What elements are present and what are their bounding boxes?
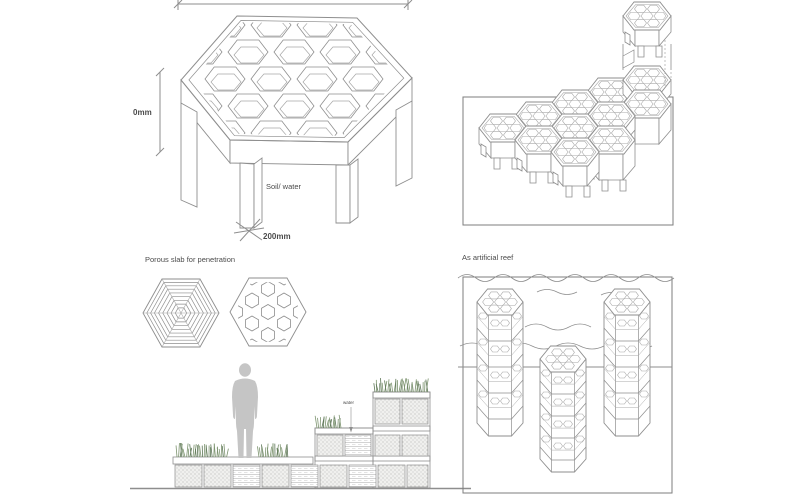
porous-slab-title: Porous slab for penetration — [145, 255, 235, 264]
reef-tower — [477, 289, 523, 436]
panel-artificial-reef: As artificial reef — [455, 245, 805, 503]
reef-tower — [604, 289, 650, 436]
panel-hex-block-detail: 0mm Soil/ water 200mm — [130, 0, 440, 245]
leg-dimension-label: 200mm — [263, 232, 291, 241]
soil-water-label: Soil/ water — [266, 182, 302, 191]
height-dimension-label: 0mm — [133, 108, 152, 117]
module-cluster-drawing — [455, 0, 805, 232]
dimension-line-top — [174, 0, 412, 10]
reef-tower — [540, 346, 586, 472]
grass-tuft — [257, 443, 287, 457]
hex-block-drawing: 0mm Soil/ water 200mm — [130, 0, 440, 245]
design-sheet: 0mm Soil/ water 200mm — [0, 0, 805, 503]
porous-slab-concentric — [143, 279, 219, 347]
panel-porous-section: Porous slab for penetration water — [130, 245, 475, 503]
porous-slab-honeycomb — [230, 259, 307, 366]
hex-module — [551, 138, 599, 197]
human-figure — [232, 363, 258, 458]
reef-towers — [477, 289, 650, 472]
module-cluster — [479, 66, 671, 197]
porous-section-drawing: Porous slab for penetration water — [130, 245, 475, 503]
panel-module-cluster — [455, 0, 805, 232]
grass-tuft — [315, 415, 341, 428]
reef-title: As artificial reef — [462, 253, 514, 262]
dimension-line-height: 0mm — [133, 68, 164, 156]
water-callout-label: water — [343, 400, 355, 405]
grass-tuft — [374, 378, 428, 392]
artificial-reef-drawing: As artificial reef — [455, 245, 805, 503]
section-elevation — [173, 392, 430, 488]
hex-module — [623, 2, 671, 57]
grass-tuft — [176, 443, 228, 457]
